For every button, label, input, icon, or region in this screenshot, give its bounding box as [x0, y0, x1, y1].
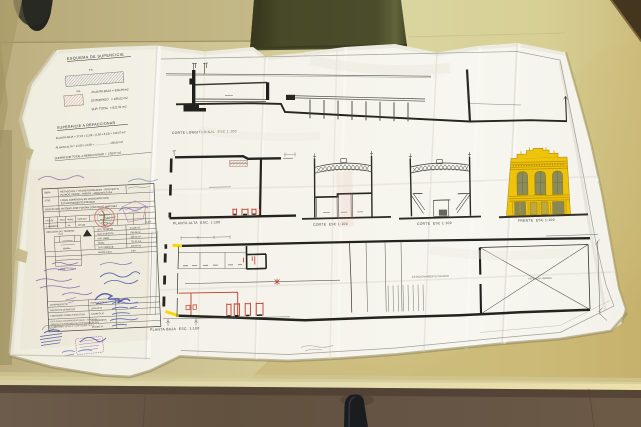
svg-text:LEGAJO N°: LEGAJO N°	[91, 307, 103, 311]
svg-text:OBRA: OBRA	[44, 191, 51, 194]
svg-text:P.A.: P.A.	[89, 67, 94, 71]
svg-text:MANZ: MANZ	[67, 218, 74, 221]
svg-text:1:100: 1:100	[146, 221, 152, 223]
svg-text:N°: N°	[52, 220, 55, 222]
svg-text:117.25: 117.25	[63, 248, 70, 250]
svg-text:P.B.: P.B.	[76, 89, 81, 93]
svg-text:125-AB: 125-AB	[78, 223, 86, 226]
svg-text:PARCELA: PARCELA	[77, 217, 87, 220]
svg-text:SECC: SECC	[60, 219, 66, 221]
svg-text:TOTAL: TOTAL	[98, 241, 106, 244]
svg-text:VIVIENDA LINDERA: VIVIENDA LINDERA	[528, 276, 552, 281]
svg-text:SITIO: SITIO	[45, 200, 51, 202]
